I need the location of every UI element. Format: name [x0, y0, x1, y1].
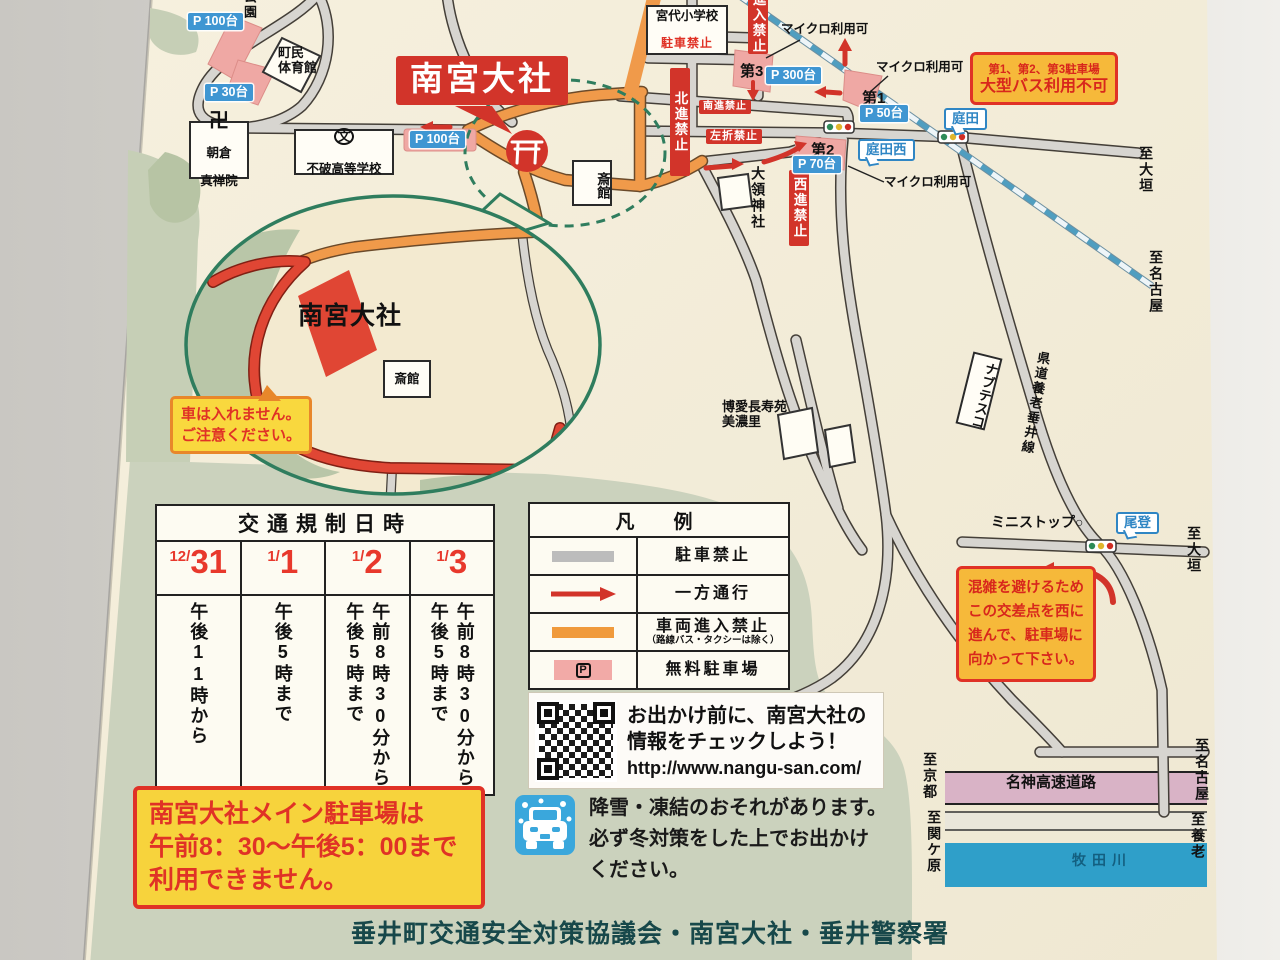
map-graphic [0, 0, 1280, 960]
torii-icon [506, 130, 548, 172]
flyer-photo: P 100台P 30台公園町民体育館卍朝倉真禅院文不破高等学校南宮大社P 100… [0, 0, 1280, 960]
river-band [945, 843, 1207, 887]
